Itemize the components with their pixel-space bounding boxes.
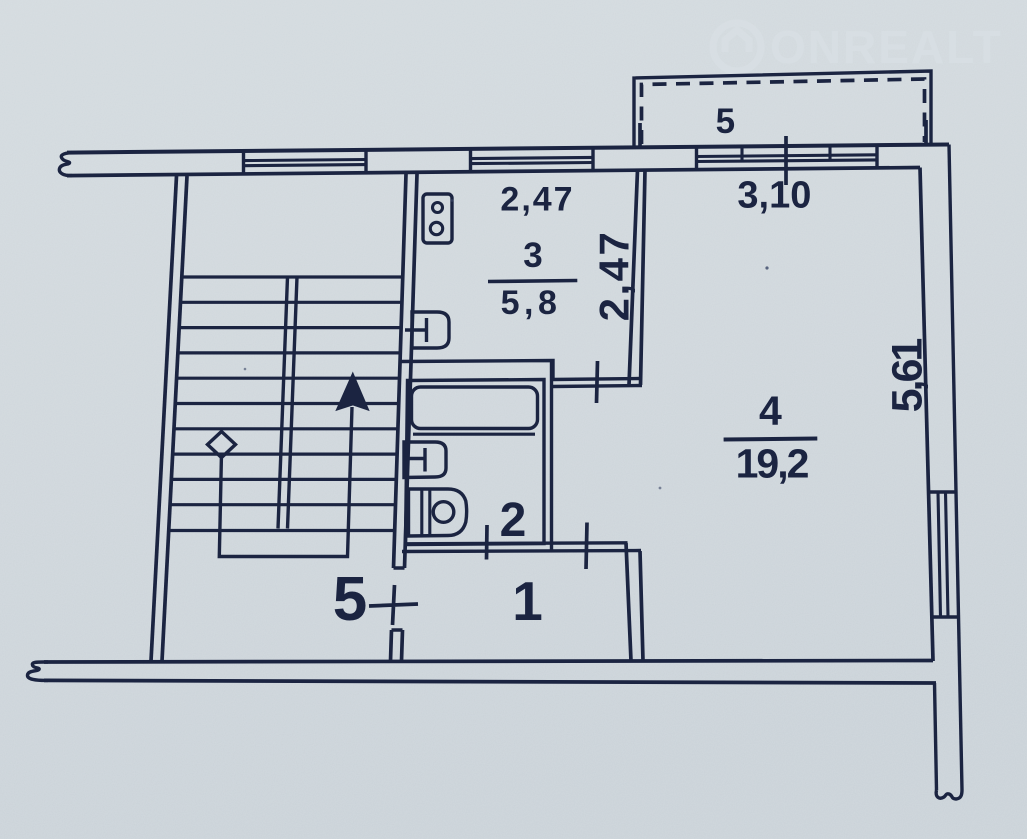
svg-text:2: 2 <box>500 494 527 547</box>
svg-text:19,2: 19,2 <box>736 441 809 487</box>
svg-text:5: 5 <box>333 565 367 634</box>
svg-text:4: 4 <box>759 387 782 433</box>
svg-text:ONREALT: ONREALT <box>770 21 1003 73</box>
svg-text:3,10: 3,10 <box>737 175 811 217</box>
svg-text:2,47: 2,47 <box>591 230 638 322</box>
svg-text:1: 1 <box>512 570 543 632</box>
svg-text:5,61: 5,61 <box>884 339 932 413</box>
svg-text:3: 3 <box>523 236 542 275</box>
svg-text:5: 5 <box>716 102 735 141</box>
svg-text:5,8: 5,8 <box>501 284 562 322</box>
svg-text:2,47: 2,47 <box>500 181 574 219</box>
